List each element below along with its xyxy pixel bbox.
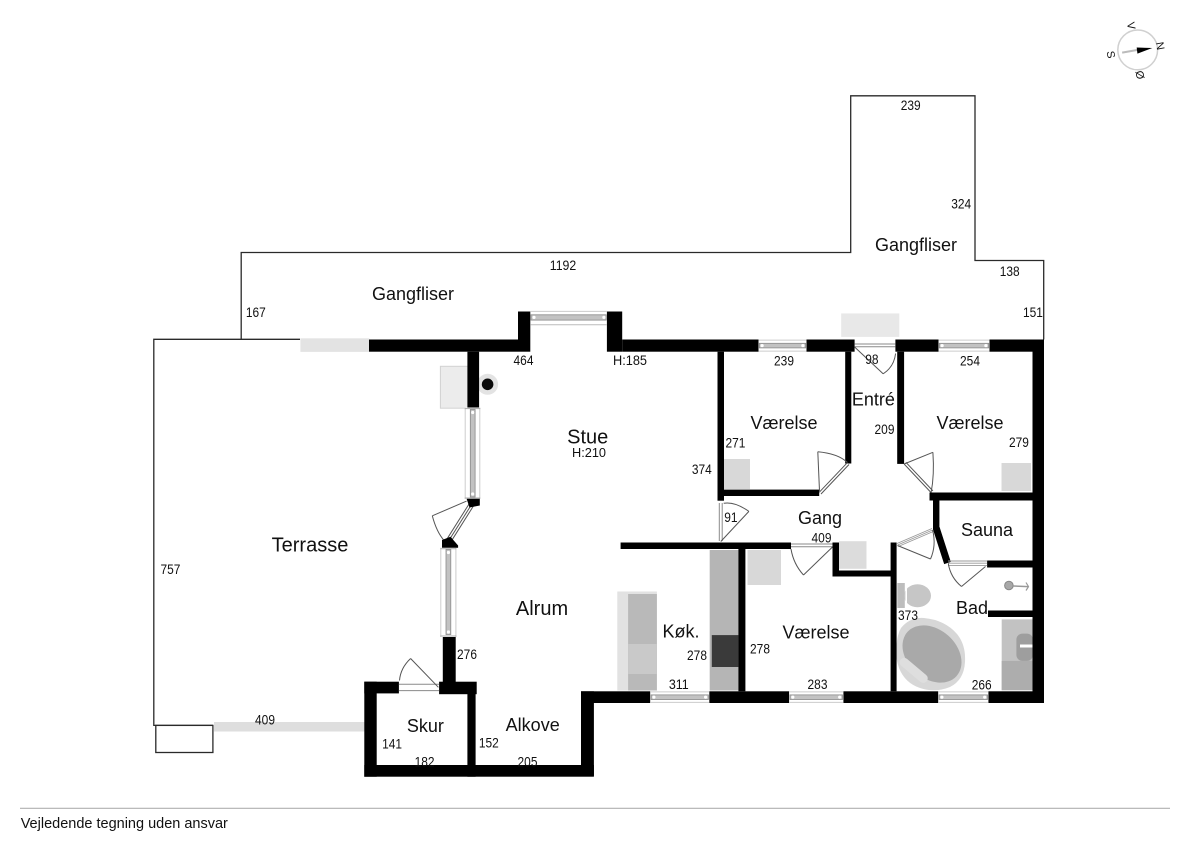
svg-text:151: 151	[1023, 304, 1043, 320]
svg-text:271: 271	[725, 435, 745, 451]
svg-text:279: 279	[1009, 434, 1029, 450]
svg-text:Entré: Entré	[852, 390, 895, 410]
svg-text:Værelse: Værelse	[750, 413, 817, 433]
svg-text:Bad: Bad	[956, 598, 988, 618]
svg-text:205: 205	[518, 753, 538, 769]
svg-text:H:210: H:210	[572, 445, 606, 460]
svg-text:374: 374	[692, 461, 712, 477]
svg-text:Gang: Gang	[798, 508, 842, 528]
svg-text:Sauna: Sauna	[961, 520, 1014, 540]
svg-text:409: 409	[255, 712, 275, 728]
svg-text:Værelse: Værelse	[936, 413, 1003, 433]
svg-text:Alkove: Alkove	[506, 715, 560, 735]
svg-text:409: 409	[812, 530, 832, 546]
svg-text:Terrasse: Terrasse	[272, 535, 349, 557]
svg-text:Gangfliser: Gangfliser	[372, 284, 454, 304]
svg-text:311: 311	[669, 676, 689, 692]
svg-text:757: 757	[160, 561, 180, 577]
svg-text:Vejledende tegning uden ansvar: Vejledende tegning uden ansvar	[21, 816, 228, 832]
svg-text:254: 254	[960, 353, 980, 369]
svg-text:239: 239	[774, 353, 794, 369]
svg-text:276: 276	[457, 646, 477, 662]
svg-text:Gangfliser: Gangfliser	[875, 235, 957, 255]
svg-text:141: 141	[382, 735, 402, 751]
svg-text:278: 278	[750, 641, 770, 657]
svg-text:239: 239	[901, 97, 921, 113]
svg-text:138: 138	[1000, 263, 1020, 279]
svg-text:91: 91	[724, 509, 737, 525]
svg-text:Værelse: Værelse	[782, 623, 849, 643]
svg-text:Køk.: Køk.	[662, 622, 699, 642]
svg-text:283: 283	[808, 676, 828, 692]
svg-text:1192: 1192	[550, 257, 577, 273]
svg-text:167: 167	[246, 304, 266, 320]
svg-text:373: 373	[898, 607, 918, 623]
svg-text:152: 152	[479, 735, 499, 751]
svg-text:324: 324	[951, 196, 971, 212]
svg-text:182: 182	[415, 753, 435, 769]
svg-text:H:185: H:185	[613, 352, 647, 368]
svg-text:Skur: Skur	[407, 716, 444, 736]
svg-text:464: 464	[514, 352, 534, 368]
svg-text:278: 278	[687, 647, 707, 663]
svg-text:Alrum: Alrum	[516, 598, 568, 620]
svg-text:209: 209	[875, 421, 895, 437]
svg-text:98: 98	[865, 351, 878, 367]
svg-text:266: 266	[972, 677, 992, 693]
